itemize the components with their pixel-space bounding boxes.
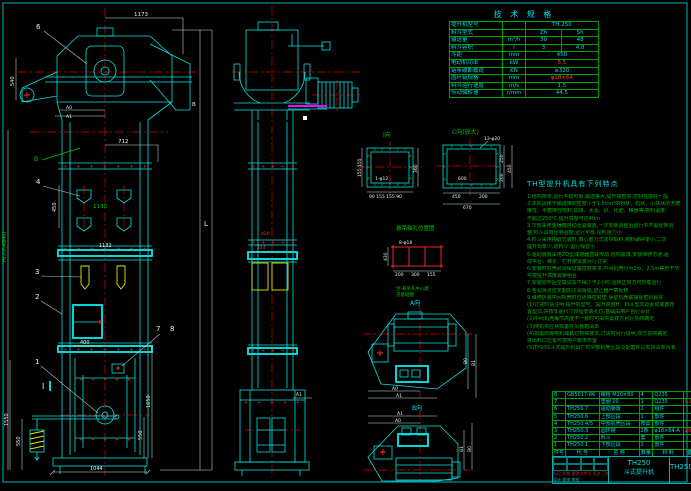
bom-cell: 9.0 (683, 399, 691, 406)
spec-value: 1.5 (525, 82, 598, 90)
note-line: 进出料口位置可按用户要求布置 (527, 338, 690, 345)
note-line: 整,料斗具有足够强度,运行可靠,挖料阻力小 (527, 230, 690, 237)
bom-row: 1TH250.1下部区段1部件 (553, 442, 691, 449)
note-line: (3)随机供应易损备件见装箱清单 (527, 324, 690, 331)
dim-b-a1: A1 (397, 411, 403, 417)
svg-text:× × × × ×: × × × × × (373, 147, 407, 152)
spec-unit: m/s (503, 82, 526, 90)
spec-label: 料斗型式 (450, 29, 503, 37)
bom-row: 8GB5017-86螺栓 M20×804Q235 (553, 392, 691, 399)
dim-400: 400 (80, 340, 90, 346)
dim-red-444: 444 (257, 245, 266, 251)
b-direction-view: B向 A1 A0 B1 B0 (362, 404, 473, 482)
note-line: 1.结构简单,运行平稳可靠,输送量大,提升高度高,密封性能好一般 (527, 194, 690, 201)
dim-1132: 1132 (99, 243, 112, 249)
bom-cell: TH250.6 (566, 413, 600, 420)
dim-c-b2: 200 (479, 194, 488, 200)
dim-1130: 1130 (93, 204, 107, 210)
note-line: 可按提升高度需要组合 (527, 273, 690, 280)
spec-value: 3 (525, 44, 562, 52)
spec-label: 链条破断载荷 (450, 67, 503, 75)
spec-unit: mm (503, 75, 526, 83)
equipment-name: 斗式提升机 (609, 467, 669, 476)
svg-text:+ + + + +: + + + + + (79, 377, 131, 383)
spec-unit: kW (503, 59, 526, 67)
bom-cell: TH250.7 (566, 406, 600, 413)
bom-cell (683, 406, 691, 413)
drawing-title: TH250 斗式提升机 (609, 457, 670, 483)
spec-unit (503, 29, 526, 37)
part-balloon-3: 3 (35, 268, 39, 276)
dim-i-left: 155 155 (357, 158, 363, 177)
part-balloon-7: 7 (156, 325, 160, 333)
bom-cell: 部件 (653, 435, 683, 442)
flag-b: B (34, 156, 38, 163)
svg-text:× × × × ×: × × × × × (373, 182, 407, 187)
bom-cell: 垫圈 20 (599, 399, 639, 406)
bom-cell: 按需 (639, 420, 653, 427)
dim-c-r1: 250 (499, 154, 505, 163)
bom-cell: 5 (553, 413, 566, 420)
note-line: 不超过250℃,提升高度可达40m (527, 216, 690, 223)
dim-a0: A0 (66, 105, 72, 111)
bom-row: 3TH250.3圆环链2条φ18×64-A205 (553, 428, 691, 435)
bom-cell: 1 (639, 399, 653, 406)
dim-red-420: 420 (261, 231, 270, 237)
section-mark-i: I (42, 382, 44, 391)
spec-value: 450 (525, 52, 598, 60)
bom-cell: 部件 (653, 420, 683, 427)
svg-text:+ + + + +: + + + + + (251, 348, 295, 354)
bom-cell: GB5017-86 (566, 392, 600, 399)
dim-712: 712 (118, 139, 129, 145)
bom-cell: 螺栓 M20×80 (599, 392, 639, 399)
spec-table-title: 技 术 规 格 (449, 9, 599, 20)
bom-cell (566, 399, 600, 406)
view-label-c: C向(放大) (452, 128, 479, 136)
dim-a-b1: B1 (471, 360, 477, 366)
cad-sheet: 1173 6 540 A0 A1 B + + + + + + + + + + +… (0, 0, 691, 491)
dim-i-bottom: 90 155 155 90 (369, 194, 402, 200)
bom-cell (683, 392, 691, 399)
bom-cell: TH250.3 (566, 428, 600, 435)
title-block: 标记 处数 更改文件号 签名 日期 设计 校核 审核 TH250 斗式提升机 T… (552, 456, 691, 484)
spec-label: 斗距 (450, 52, 503, 60)
dim-550-left: 550 (16, 436, 22, 446)
revision-grid: 标记 处数 更改文件号 签名 日期 设计 校核 审核 (553, 457, 609, 483)
part-balloon-6: 6 (36, 23, 41, 31)
note-line: 动平台、梯子、栏杆按需要另行订货 (527, 259, 690, 266)
part-balloon-8: 8 (170, 325, 174, 333)
detail-title: 悬吊轴孔位置图 (396, 224, 435, 232)
bom-cell: 部件 (653, 442, 683, 449)
suspension-hole-detail: 悬吊轴孔位置图 8-φ18 430 200 300 155 注:悬吊孔中心距 见… (383, 224, 443, 298)
spec-value: 48 (562, 37, 599, 45)
detail-note-2: 见基础图 (396, 291, 414, 298)
spec-label: 输送量 (450, 37, 503, 45)
bom-cell: 部件 (653, 413, 683, 420)
bom-row: 2TH250.2料斗套部件 (553, 435, 691, 442)
bom-cell: 下部区段 (599, 442, 639, 449)
spec-label: 料斗运行速度 (450, 82, 503, 90)
bom-cell: 4 (553, 420, 566, 427)
dim-1650: 1650 (146, 395, 152, 408)
dim-a-b0: B0 (463, 358, 469, 364)
dim-450: 450 (52, 202, 58, 212)
note-line: 2.本机适用于输送堆积密度小于1.5t/m³的粉状、粒状、小块状的无磨 (527, 201, 690, 208)
spec-value: ≥320 (525, 67, 598, 75)
detail-bolt-label: 8-φ18 (399, 240, 412, 246)
spec-value-red: φ18×64 (525, 75, 598, 83)
bom-cell: 1 (639, 406, 653, 413)
note-line: (5)TH250斗式提升机出厂时中部机壳区段及配套件以发货清单为准。 (527, 345, 690, 352)
note-line: (2)中间机壳每节高度不一致时可由供需双方另行协商确定 (527, 316, 690, 323)
bom-cell: 1 (553, 442, 566, 449)
spec-unit: mm (503, 52, 526, 60)
dim-det-300: 300 (411, 272, 420, 278)
part-balloon-2: 2 (35, 293, 39, 301)
spec-unit: r/min (503, 90, 526, 98)
dim-overall-h: H(大约4840) (1, 232, 8, 262)
dim-1044: 1044 (90, 466, 103, 472)
bom-row: 4TH250.4/5中部机壳区段按需部件 (553, 420, 691, 427)
bom-table: 8GB5017-86螺栓 M20×804Q235 7垫圈 201Q2359.0 … (552, 391, 691, 457)
svg-text:× × × × ×: × × × × × (450, 144, 493, 149)
note-line: 琢性、半磨琢性物料,如煤、水泥、砂、化肥、粮食等,物料温度 (527, 208, 690, 215)
bom-cell: 中部机壳区段 (599, 420, 639, 427)
bucket-yellow (81, 266, 89, 289)
dim-c-r3: 450 (507, 164, 513, 173)
bom-cell: 1 (639, 442, 653, 449)
label-i-inner: 1-φ12 (375, 176, 388, 182)
bom-cell: 205 (683, 428, 691, 435)
bom-cell (683, 442, 691, 449)
bom-cell: 2条 (639, 428, 653, 435)
dim-c-r2: 200 (499, 173, 505, 182)
bom-cell: 料斗 (599, 435, 639, 442)
bucket-side-yellow (272, 263, 288, 290)
bom-cell: TH250.4/5 (566, 420, 600, 427)
bom-cell: 驱动装置 (599, 406, 639, 413)
spec-value-red: 5.5 (525, 59, 598, 67)
view-label-b: B向 (412, 404, 422, 412)
bom-cell: 组件 (653, 406, 683, 413)
note-line: (1)订货时请注明:提升机型号、提升高度H、料斗型式及驱动装置布 (527, 302, 690, 309)
bom-cell: TH250.1 (566, 442, 600, 449)
dim-a-a1: A1 (396, 393, 402, 399)
spec-label: 电动机功率 (450, 59, 503, 67)
spec-value: 30 (525, 37, 562, 45)
dim-head-height: 540 (10, 76, 16, 86)
bom-cell: 圆环链 (599, 428, 639, 435)
dim-1550: 1550 (4, 413, 10, 426)
section-i-view: I向 × × × × × × × × × × × × × × × × 1-φ12… (357, 131, 422, 200)
bom-cell: 6 (553, 406, 566, 413)
bom-row: 7垫圈 201Q2359.0 (553, 399, 691, 406)
part-balloon-1: 1 (35, 358, 39, 366)
dim-c-inner: 600 (458, 176, 467, 182)
notes-title: TH型提升机具有下列特点 (527, 179, 690, 189)
svg-text:+ + + + +: + + + + + (251, 164, 295, 170)
note-line: 7.安装完毕后空载试车不得少于2小时,运转正常方可负载运行 (527, 280, 690, 287)
dim-head-width: 1173 (134, 12, 148, 18)
cursor-square (303, 116, 307, 120)
dim-a1-mid: A1 (296, 392, 302, 398)
spec-unit: m³/h (503, 37, 526, 45)
svg-text:× × × × ×: × × × × × (450, 183, 493, 188)
svg-text:+ + + + +: + + + + + (79, 437, 131, 443)
note-line: 提升现象少,返料少,运行噪音小 (527, 244, 690, 251)
model-number: TH250 (609, 459, 669, 467)
spec-value: Sh (562, 29, 599, 37)
bom-cell (683, 435, 691, 442)
view-label-i: I向 (383, 131, 391, 139)
note-line: 5.驱动装置采用ZQ型减速器直联传动,结构紧凑,安装维修方便,驱 (527, 252, 690, 259)
note-line: (4)如需防爆电机或其它特殊要求,订货时另行说明,双方协商确定, (527, 331, 690, 338)
dim-l: L (204, 220, 208, 228)
side-view: + + + + + + + + + + 420 444 + + + + + + … (232, 6, 362, 478)
label-b-right: B (192, 102, 196, 108)
spec-value: 44.5 (525, 90, 598, 98)
spec-table: 技 术 规 格 提升机型号TH 250 料斗型式ZhSh 输送量m³/h3048… (449, 9, 599, 98)
dim-c-b1: 450 (452, 194, 461, 200)
spec-value: Zh (525, 29, 562, 37)
dim-c-total: 670 (463, 205, 472, 211)
note-line: 9.维修拆装中间机壳时应更换密封垫,保证机壳联接处密封良好 (527, 295, 690, 302)
dim-b-b0: B0 (467, 446, 473, 452)
spec-value: TH 250 (525, 22, 598, 30)
bom-row: 6TH250.7驱动装置1组件 (553, 406, 691, 413)
spec-unit: KN (503, 67, 526, 75)
section-c-view: C向(放大) 13-φ20 × × × × × × × × × × × × × … (436, 128, 513, 211)
dim-i-360: 360 (413, 164, 419, 173)
note-line: 置型式,并按本图尺寸预留安装孔位,基础由用户自行设计 (527, 309, 690, 316)
dim-b-a0: A0 (395, 418, 401, 424)
a-direction-view: A向 B0 B1 A0 A1 (362, 299, 477, 399)
bom-cell: 上部区段 (599, 413, 639, 420)
spec-label: 提升机型号 (450, 22, 503, 30)
dim-det-155: 155 (427, 272, 436, 278)
svg-text:+ + + + +: + + + + + (244, 400, 300, 406)
detail-note-1: 注:悬吊孔中心距 (396, 285, 430, 292)
spec-label: 传动轴转速 (450, 90, 503, 98)
dim-b-b1: B1 (459, 446, 465, 452)
spec-label: 料斗容积 (450, 44, 503, 52)
note-line: 8.各润滑点应定期加注润滑脂,逆止器严禁反转 (527, 288, 690, 295)
note-line: 3.下部采用重锤箱自动张紧装置,一次安装调整后运行中不需经常调 (527, 223, 690, 230)
dim-det-200: 200 (395, 272, 404, 278)
view-label-a: A向 (410, 299, 420, 307)
bom-cell (683, 420, 691, 427)
part-balloon-4: 4 (36, 178, 41, 186)
label-c-bolts: 13-φ20 (484, 136, 500, 142)
spec-unit (503, 22, 526, 30)
bom-cell: Q235 (653, 399, 683, 406)
note-line: 6.安装时机壳必须保证垂直度要求,中间机壳分为2m、2.5m等若干节 (527, 266, 690, 273)
bom-cell: φ18×64-A (653, 428, 683, 435)
bom-cell: 7 (553, 399, 566, 406)
front-view: 1173 6 540 A0 A1 B + + + + + + + + + + +… (1, 8, 212, 478)
spec-label: 圆环链规格 (450, 75, 503, 83)
bom-cell: 2 (553, 435, 566, 442)
bom-cell: 4 (639, 392, 653, 399)
bucket-symbols (77, 190, 131, 231)
dim-a-a0: A0 (392, 386, 398, 392)
dim-550-right: 550 (138, 430, 144, 440)
bom-cell: TH250.2 (566, 435, 600, 442)
note-line: 4.料斗采用掏取式装料,离心重力式诱导卸料,物料破碎率小,二次 (527, 237, 690, 244)
dim-det-430: 430 (383, 252, 389, 261)
notes-block: TH型提升机具有下列特点 1.结构简单,运行平稳可靠,输送量大,提升高度高,密封… (527, 179, 690, 352)
drawing-number: TH250 (670, 457, 691, 483)
spec-value: 4.8 (562, 44, 599, 52)
dim-a1: A1 (66, 114, 72, 120)
bom-cell: 8 (553, 392, 566, 399)
signature-labels: 设计 校核 审核 (553, 477, 608, 483)
bom-cell: 套 (639, 435, 653, 442)
spec-unit: l (503, 44, 526, 52)
bom-row: 5TH250.6上部区段1部件 (553, 413, 691, 420)
bom-cell (683, 413, 691, 420)
bucket-yellow (117, 266, 125, 289)
bom-cell: 3 (553, 428, 566, 435)
bom-cell: Q235 (653, 392, 683, 399)
bucket-side-yellow (252, 263, 268, 290)
bom-cell: 1 (639, 413, 653, 420)
